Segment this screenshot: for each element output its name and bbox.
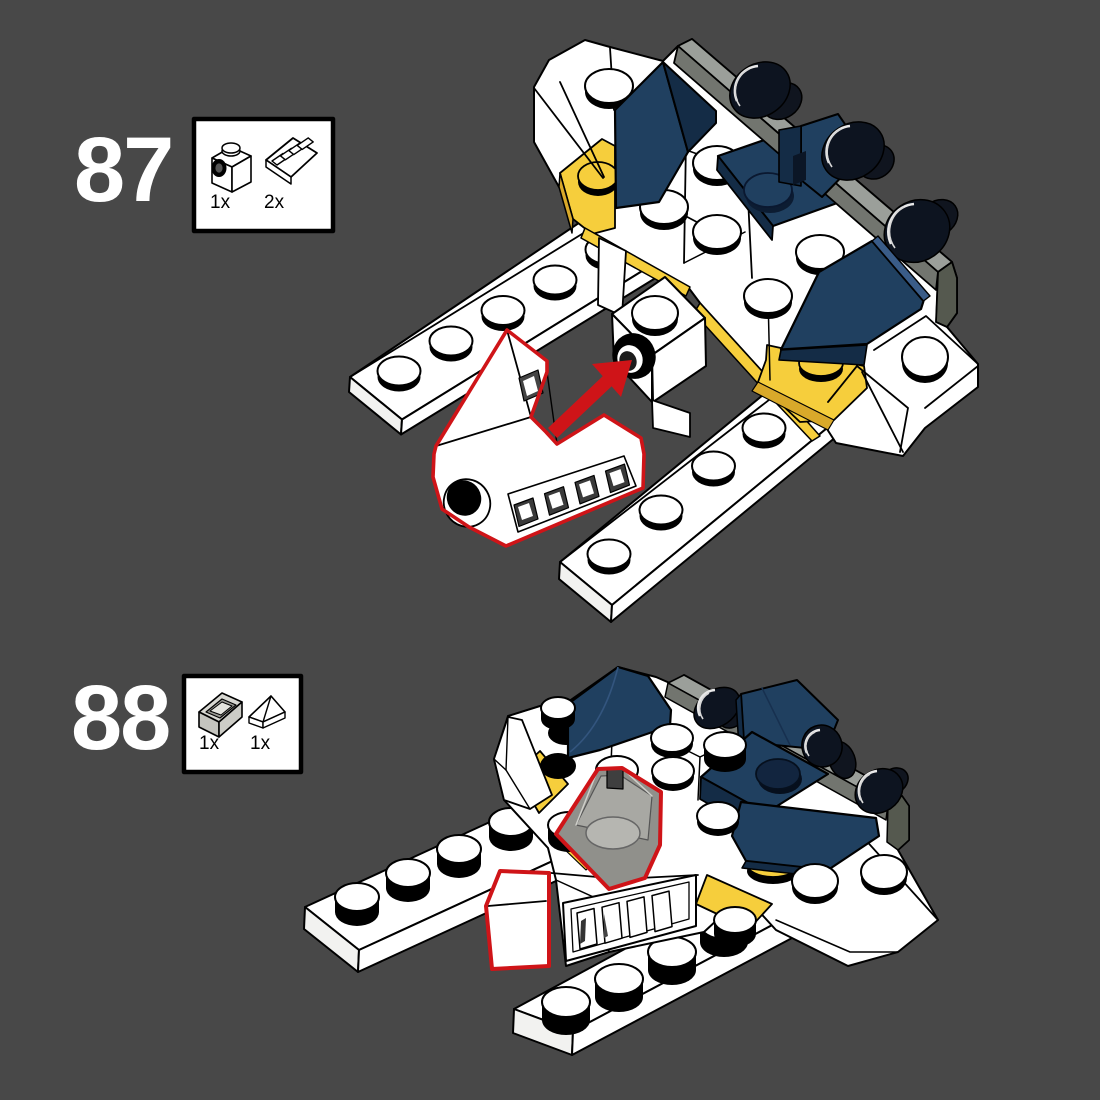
- svg-text:1x: 1x: [250, 733, 271, 754]
- svg-text:2x: 2x: [264, 192, 285, 213]
- svg-text:1x: 1x: [199, 733, 220, 754]
- svg-text:1x: 1x: [210, 192, 231, 213]
